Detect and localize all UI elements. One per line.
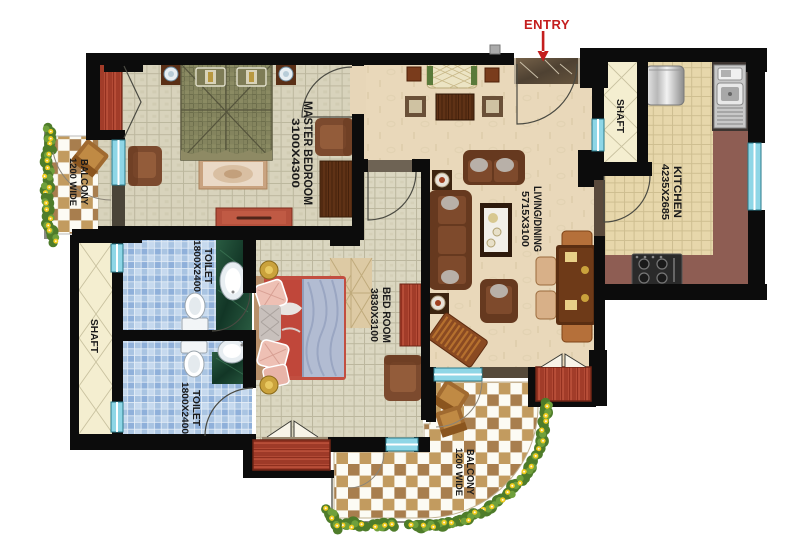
svg-text:3100X4300: 3100X4300 (289, 118, 301, 188)
svg-text:TOILET: TOILET (202, 248, 213, 284)
svg-text:BALCONY: BALCONY (78, 159, 89, 205)
svg-text:1200 WIDE: 1200 WIDE (453, 448, 464, 496)
svg-text:MASTER BEDROOM: MASTER BEDROOM (301, 101, 313, 205)
svg-text:BED ROOM: BED ROOM (380, 287, 392, 343)
svg-text:5715X3100: 5715X3100 (519, 191, 531, 247)
svg-text:LIVING/DINING: LIVING/DINING (531, 186, 543, 252)
svg-text:1200 WIDE: 1200 WIDE (67, 158, 78, 206)
svg-text:KITCHEN: KITCHEN (671, 166, 683, 218)
svg-text:1800X2400: 1800X2400 (179, 382, 190, 434)
svg-text:BALCONY: BALCONY (464, 449, 475, 495)
svg-text:SHAFT: SHAFT (88, 319, 99, 353)
svg-text:4235X2685: 4235X2685 (659, 164, 671, 220)
svg-text:1800X2400: 1800X2400 (191, 240, 202, 292)
svg-text:3830X3100: 3830X3100 (368, 288, 380, 342)
svg-text:ENTRY: ENTRY (524, 17, 570, 32)
svg-text:SHAFT: SHAFT (614, 99, 625, 133)
svg-text:TOILET: TOILET (190, 390, 201, 426)
